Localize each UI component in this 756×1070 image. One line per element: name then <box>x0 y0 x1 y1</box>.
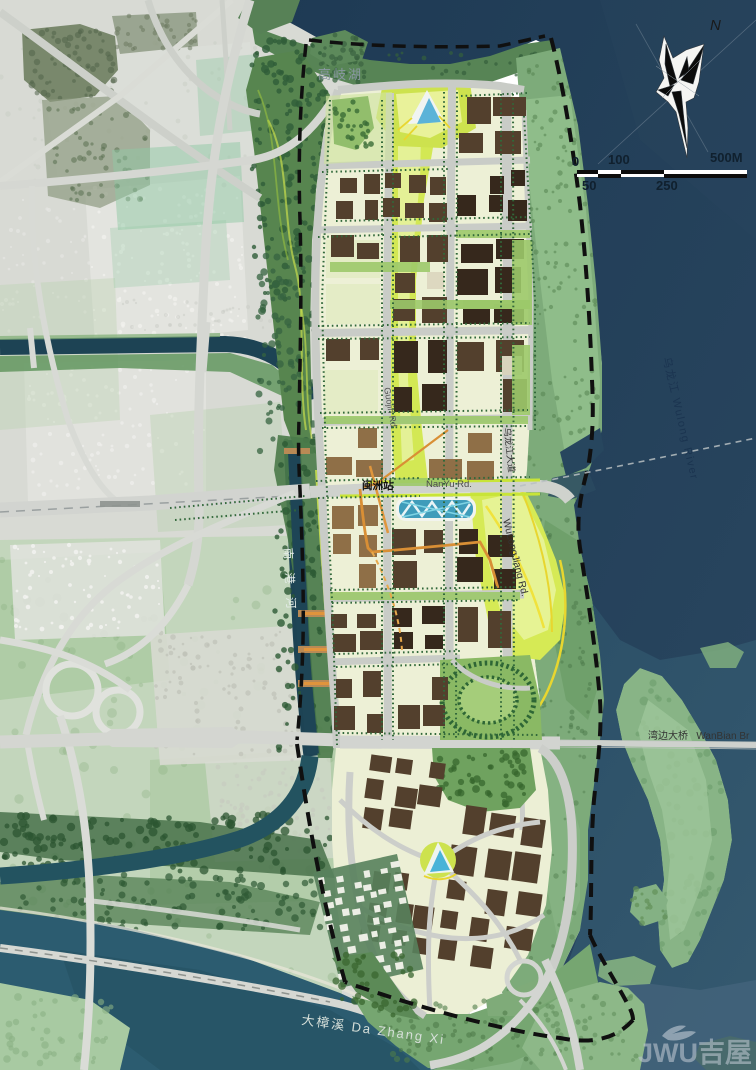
svg-text:NanYu Rd.: NanYu Rd. <box>426 479 472 490</box>
svg-text:500M: 500M <box>710 150 743 165</box>
svg-text:高岐湖: 高岐湖 <box>318 67 363 82</box>
svg-text:250: 250 <box>656 178 678 193</box>
svg-text:100: 100 <box>608 152 630 167</box>
svg-text:闽洲站: 闽洲站 <box>362 479 394 492</box>
svg-text:50: 50 <box>582 178 596 193</box>
svg-text:0: 0 <box>572 154 579 169</box>
svg-text:湾边大桥 WanBian Br: 湾边大桥 WanBian Br <box>648 729 750 742</box>
svg-text:N: N <box>710 17 721 34</box>
svg-text:JWU吉屋: JWU吉屋 <box>638 1038 752 1068</box>
